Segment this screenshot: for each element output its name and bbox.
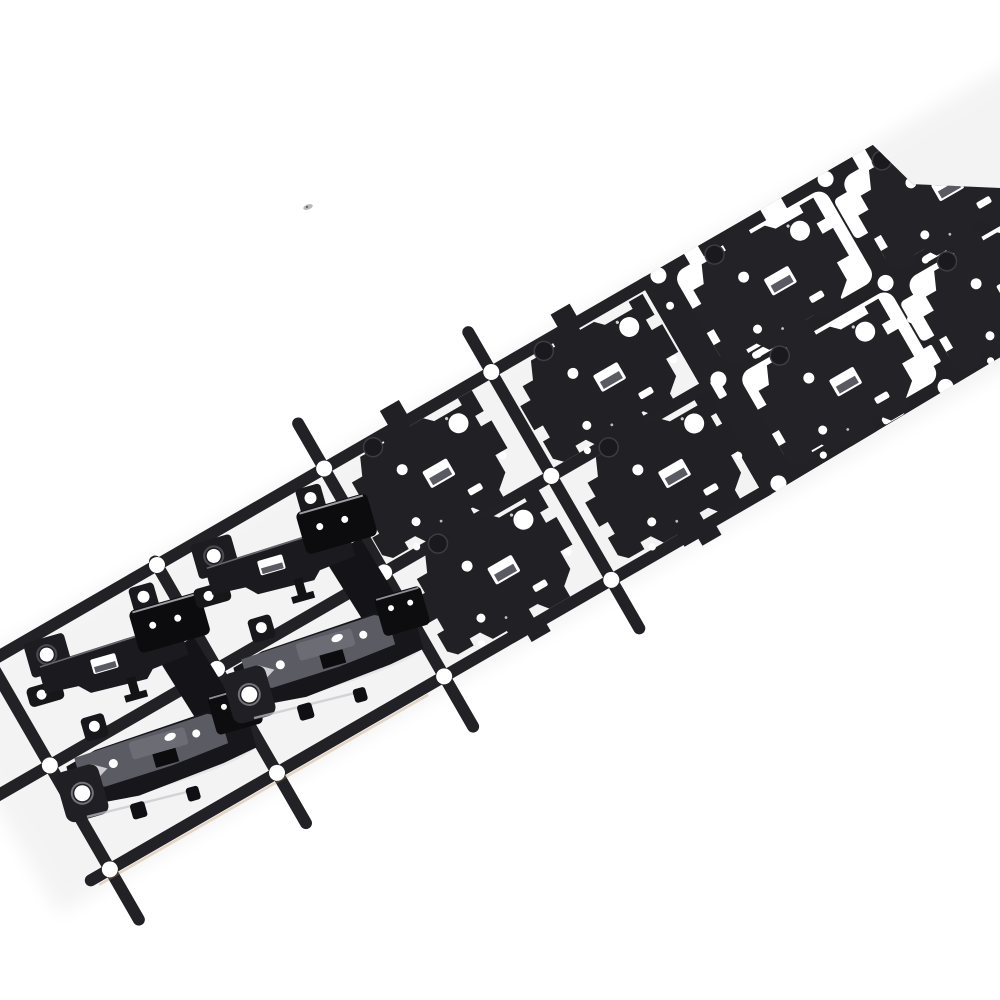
photo-canvas: Black stamped metal carrier strip runnin… bbox=[0, 0, 1000, 1000]
stamping-strip-photo: Black stamped metal carrier strip runnin… bbox=[0, 0, 1000, 1000]
stamping-strip bbox=[0, 0, 1000, 966]
dust-speck-core bbox=[306, 206, 308, 208]
